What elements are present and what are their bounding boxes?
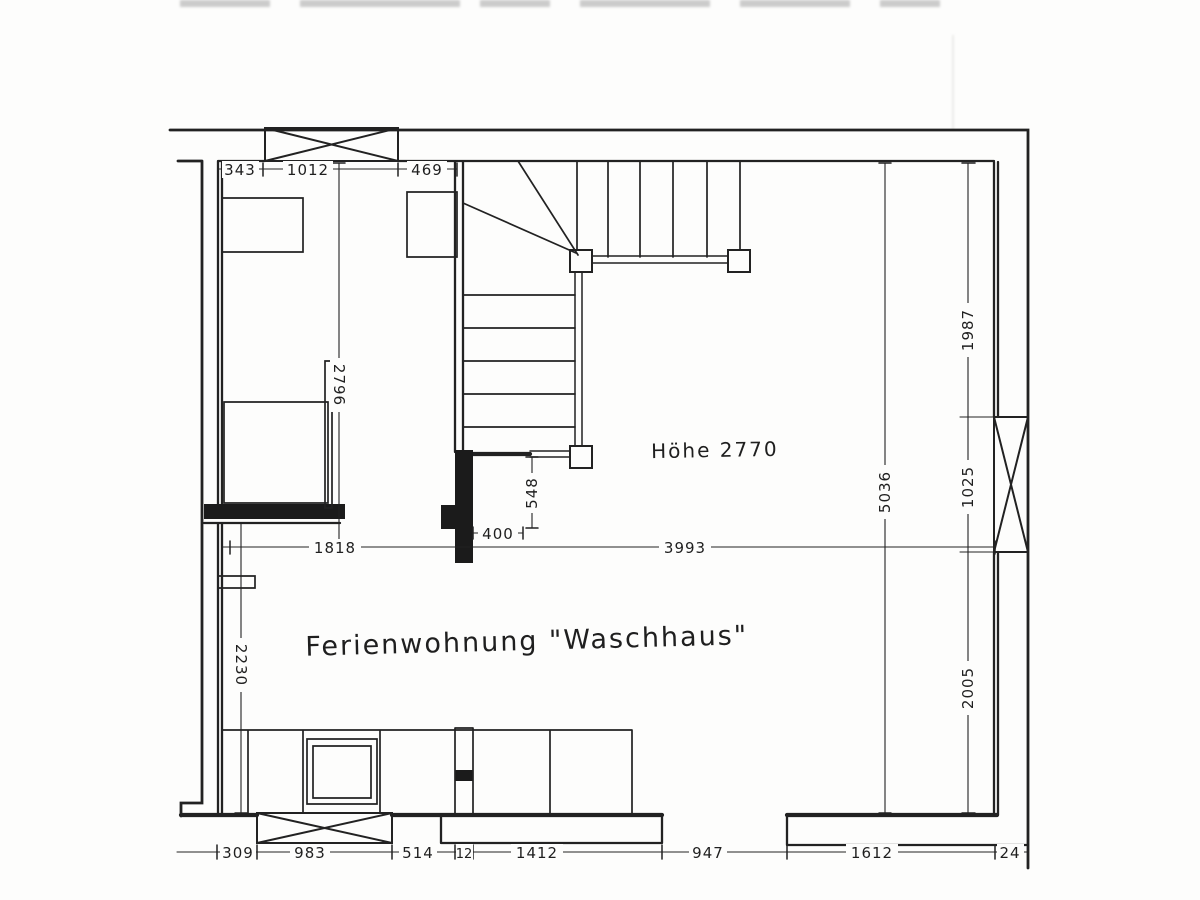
newel-post-bottom — [570, 446, 592, 468]
window-symbol-top — [265, 128, 398, 161]
solid-wall-notch — [441, 505, 455, 529]
window-symbols — [257, 128, 1028, 843]
dim-label-947: 947 — [692, 844, 724, 862]
dim-label-1987: 1987 — [959, 309, 977, 351]
dim-label-1012: 1012 — [287, 161, 329, 179]
dim-label-343: 343 — [224, 161, 256, 179]
solid-wall-room-divider — [204, 504, 345, 519]
dim-label-3993: 3993 — [664, 539, 706, 557]
floor-plan-drawing: 343 1012 469 2796 2230 1818 3993 400 548… — [0, 0, 1200, 900]
dim-label-309: 309 — [222, 844, 254, 862]
newel-post-top-right — [728, 250, 750, 272]
dim-label-24: 24 — [999, 844, 1020, 862]
dim-label-2230: 2230 — [232, 644, 250, 686]
stair-treads-path — [463, 161, 740, 427]
dim-label-1412: 1412 — [516, 844, 558, 862]
dim-label-514: 514 — [402, 844, 434, 862]
newel-post-top-left — [570, 250, 592, 272]
window-symbol-bottom — [257, 813, 392, 843]
staircase — [463, 161, 750, 468]
solid-wall-stair — [455, 450, 473, 563]
dim-label-548: 548 — [523, 477, 541, 509]
dim-label-5036: 5036 — [876, 471, 894, 513]
dim-label-2005: 2005 — [959, 667, 977, 709]
dim-label-469: 469 — [411, 161, 443, 179]
room-name-label: Ferienwohnung "Waschhaus" — [305, 620, 749, 663]
scanned-floor-plan-page: 343 1012 469 2796 2230 1818 3993 400 548… — [0, 0, 1200, 900]
window-symbol-right — [994, 417, 1028, 552]
solid-wall-kitchen-stub — [455, 770, 473, 781]
walls — [170, 130, 1028, 868]
outer-wall-path — [170, 130, 1028, 868]
dim-label-2796: 2796 — [330, 364, 348, 406]
kitchen-counter-path — [222, 728, 632, 816]
dim-label-983: 983 — [294, 844, 326, 862]
dim-label-400: 400 — [482, 525, 514, 543]
dim-label-1025: 1025 — [959, 466, 977, 508]
dim-label-12: 12 — [456, 847, 473, 862]
dim-label-1818: 1818 — [314, 539, 356, 557]
height-note-label: Höhe 2770 — [651, 437, 779, 463]
dim-label-1612: 1612 — [851, 844, 893, 862]
